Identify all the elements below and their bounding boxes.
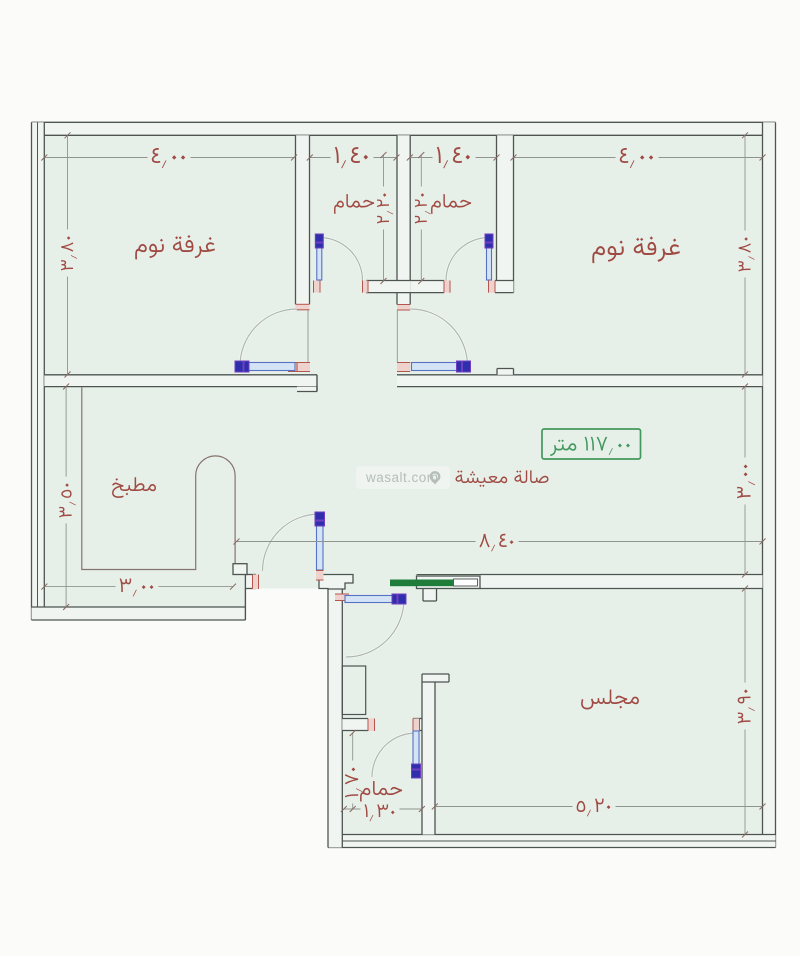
svg-text:wasalt.com: wasalt.com [365,470,439,485]
